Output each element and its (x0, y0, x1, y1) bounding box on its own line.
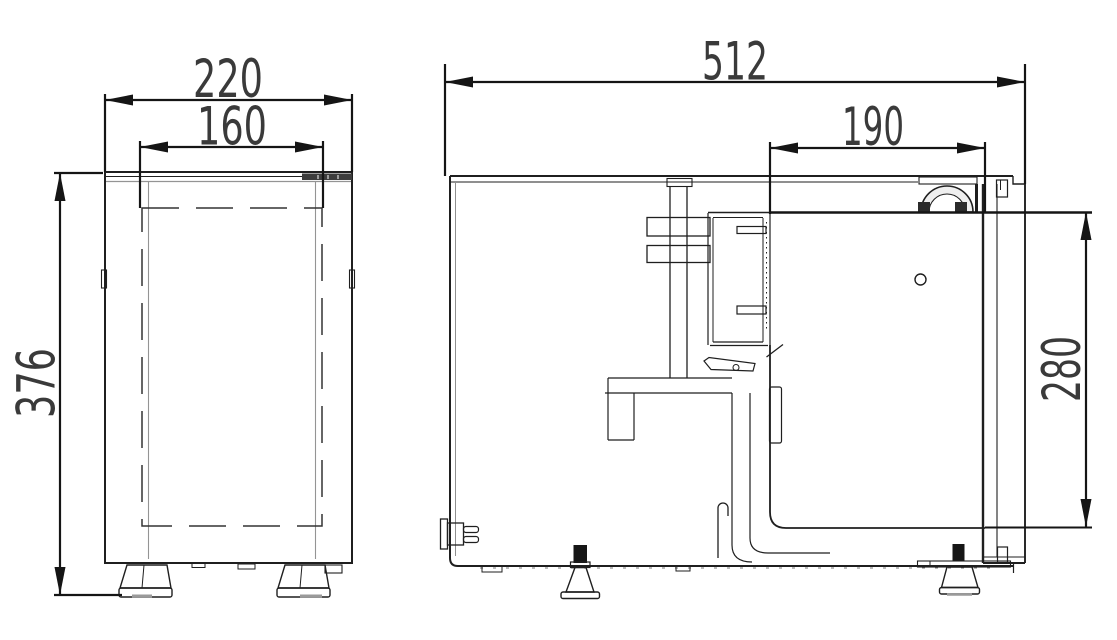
liner-profile (770, 345, 985, 528)
dim-label-side-inner-depth: 190 (842, 97, 904, 158)
door-top-clip (997, 180, 1008, 197)
dim-label-front-inner-width: 160 (197, 97, 267, 158)
side-bottom-tab-1 (482, 567, 502, 573)
dim-220-arrow-left (105, 95, 133, 106)
drip-tray (704, 345, 783, 372)
door-gasket-clip (770, 387, 782, 443)
front-view (102, 172, 355, 597)
rail-bracket-lower (647, 246, 710, 263)
front-hinge-strip (302, 174, 352, 181)
technical-drawing-page: 220 160 376 512 190 (0, 0, 1117, 640)
side-rear-foot (561, 545, 600, 599)
dim-160-arrow-right (295, 142, 323, 153)
side-front-foot (918, 544, 1014, 595)
hinge-cover-bar (919, 177, 977, 184)
front-right-foot (277, 565, 342, 597)
rear-ledge (605, 378, 732, 440)
dim-label-front-overall-height: 376 (7, 348, 68, 418)
dim-label-side-overall-depth: 512 (702, 32, 768, 93)
front-left-foot (119, 565, 172, 597)
tank (708, 213, 770, 346)
dimension-drawing: 220 160 376 512 190 (0, 0, 1117, 640)
inner-rail (667, 179, 692, 379)
dim-side-inner-height: 280 (770, 212, 1093, 528)
dim-220-arrow-right (324, 95, 352, 106)
dim-190-arrow-right (957, 143, 985, 154)
dim-280-arrow-top (1081, 212, 1092, 240)
dim-160-arrow-left (140, 142, 168, 153)
dim-side-overall-depth: 512 (445, 32, 1025, 185)
dim-190-arrow-left (770, 143, 798, 154)
front-door-dashed-outline (142, 208, 322, 526)
door-top-step (1013, 176, 1025, 184)
power-plug (441, 519, 479, 549)
side-bottom-tab-2 (676, 567, 690, 572)
dim-label-side-inner-height: 280 (1032, 336, 1093, 402)
dim-512-arrow-right (997, 77, 1025, 88)
dim-512-arrow-left (445, 77, 473, 88)
dim-front-inner-width: 160 (140, 97, 323, 209)
dim-376-arrow-bottom (55, 567, 66, 595)
dim-280-arrow-bottom (1081, 499, 1092, 527)
hinge-foot-right (955, 202, 967, 212)
hinge-foot-left (918, 202, 930, 212)
side-view (441, 176, 1026, 599)
front-bottom-tab-2 (238, 564, 255, 569)
rail-bracket-upper (647, 218, 710, 237)
screw-hole (915, 274, 926, 285)
dim-376-arrow-top (55, 173, 66, 201)
rear-channel (718, 393, 830, 562)
